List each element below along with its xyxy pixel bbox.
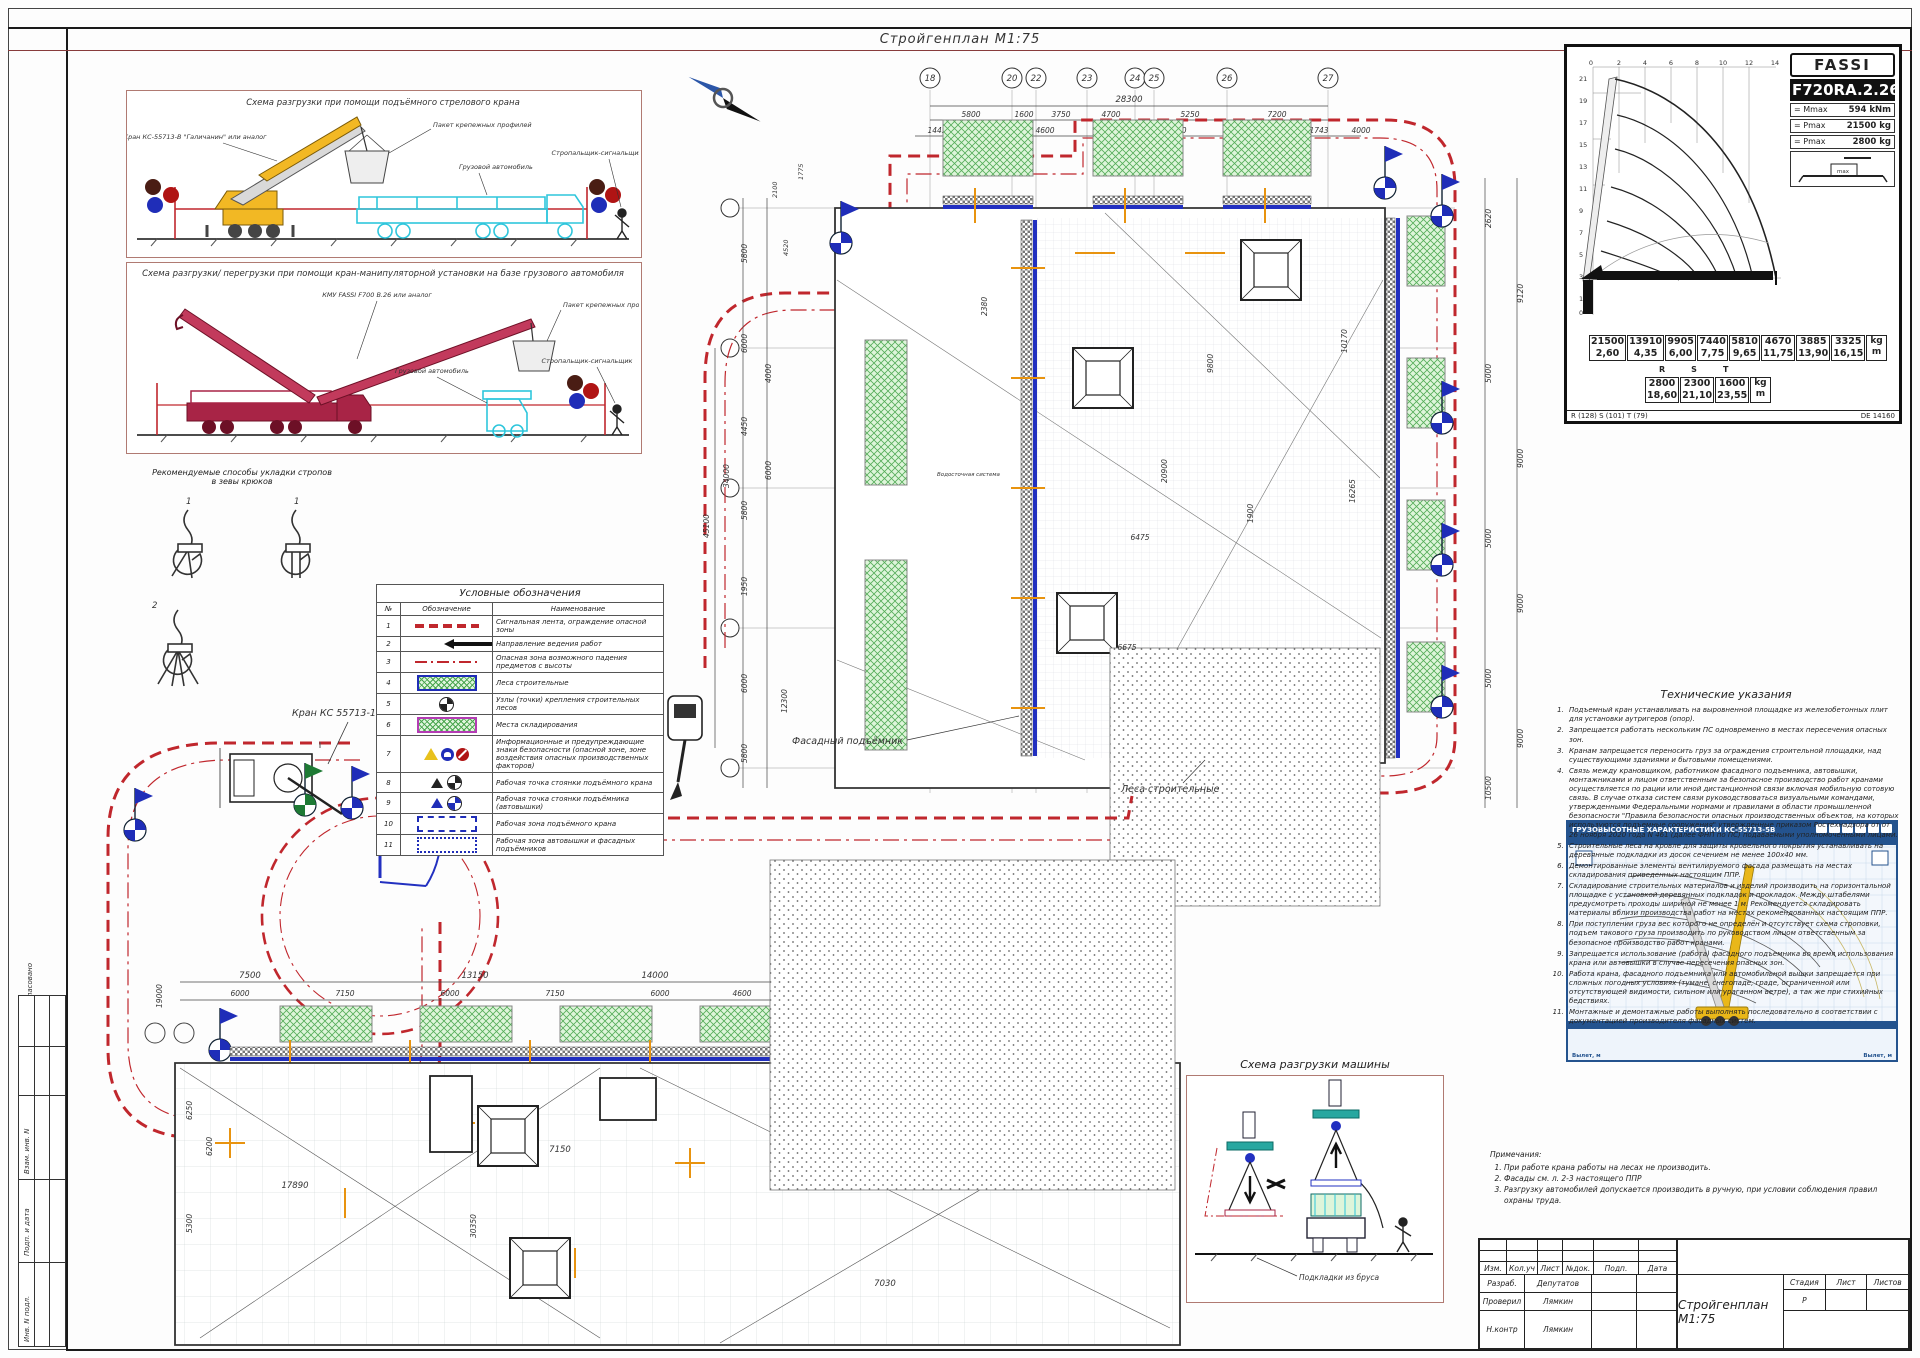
- svg-text:Фасадный подъёмник: Фасадный подъёмник: [792, 736, 903, 747]
- fassi-boom: [1581, 265, 1776, 314]
- svg-text:9120: 9120: [1516, 284, 1525, 303]
- svg-text:3750: 3750: [1051, 110, 1070, 119]
- legend-row: 3Опасная зона возможного падения предмет…: [377, 652, 663, 673]
- fassi-load-chart: 0 2 4 6 8 10 12 14 21 19 17 15 13 11 9 7…: [1564, 44, 1902, 424]
- warning-sign-icon: [424, 748, 438, 760]
- side-stamp-grid-top: [18, 995, 66, 1097]
- sling-left: [1205, 1112, 1283, 1216]
- svg-text:26: 26: [1222, 74, 1233, 84]
- scheme1-rigger-label: Стропальщик-сигнальщик: [552, 149, 639, 157]
- scheme1-truck-label: Грузовой автомобиль: [459, 163, 533, 171]
- legend-row: 8Рабочая точка стоянки подъёмного крана: [377, 773, 663, 793]
- kmu-truck: [176, 309, 555, 434]
- svg-text:4700: 4700: [1101, 110, 1120, 119]
- dim-text-left: 2100 1775 4520 5800 6000 4450 5800 4000 …: [702, 163, 805, 763]
- svg-text:19000: 19000: [155, 984, 164, 1008]
- svg-text:15: 15: [1579, 141, 1587, 149]
- lift-point-flag-icon: [431, 798, 443, 808]
- tech-item: Запрещается использование (работа) фасад…: [1566, 950, 1900, 968]
- hook-3: [158, 610, 198, 686]
- storage-area-icon: [417, 717, 477, 733]
- svg-text:Леса строительные: Леса строительные: [1120, 784, 1220, 795]
- fassi-spec-pmax2: = Pmax2800 kg: [1790, 135, 1895, 149]
- side-label-inv: Инв. N подл.: [23, 1296, 31, 1342]
- svg-text:6475: 6475: [1130, 533, 1149, 542]
- scheme2-truck-label: Грузовой автомобиль: [395, 367, 469, 375]
- svg-text:9000: 9000: [1516, 729, 1525, 748]
- rigger-figure2: [610, 405, 624, 435]
- svg-text:21: 21: [1579, 75, 1587, 83]
- storage-zones-top: [943, 120, 1311, 176]
- stamp-row-ncontrol: Н.контрЛямкин: [1480, 1311, 1676, 1348]
- work-point: [124, 788, 153, 841]
- svg-text:4520: 4520: [782, 239, 790, 256]
- storage-zone-left-2: [865, 560, 907, 750]
- scheme2-panel: Схема разгрузки/ перегрузки при помощи к…: [126, 262, 642, 454]
- scheme1-drawing: Схема разгрузки при помощи подъёмного ст…: [127, 91, 639, 255]
- legend-header: № Обозначение Наименование: [377, 603, 663, 616]
- storage-zones-right: [1407, 216, 1445, 712]
- svg-text:5000: 5000: [1484, 529, 1493, 548]
- tech-item: Кранам запрещается переносить груз за ог…: [1566, 747, 1900, 765]
- svg-text:1743: 1743: [1309, 126, 1328, 135]
- utility-circle: [145, 1023, 165, 1043]
- stamp-row-check: ПроверилЛямкин: [1480, 1293, 1676, 1311]
- skylight: [430, 1076, 472, 1152]
- scaffold-strip-right: [1386, 218, 1400, 758]
- work-point: [1374, 146, 1403, 199]
- prohibit-sign-icon: [456, 748, 469, 761]
- utility-circle: [174, 1023, 194, 1043]
- svg-text:34000: 34000: [722, 464, 731, 488]
- lift-point-icon: [447, 796, 462, 811]
- legend-table: Условные обозначения № Обозначение Наиме…: [376, 584, 664, 856]
- tech-notes-title: Технические указания: [1552, 688, 1900, 702]
- scheme1-panel: Схема разгрузки при помощи подъёмного ст…: [126, 90, 642, 258]
- north-arrow-icon: [687, 65, 763, 133]
- svg-text:5800: 5800: [740, 244, 749, 263]
- tech-notes: Технические указания Подъемный кран уста…: [1552, 688, 1900, 1028]
- svg-text:9800: 9800: [1206, 354, 1215, 373]
- svg-text:13: 13: [1579, 163, 1587, 171]
- side-stamp-grid: Взам. инв. N Подп. и дата Инв. N подл.: [18, 1095, 66, 1347]
- svg-text:5800: 5800: [740, 744, 749, 763]
- svg-text:7500: 7500: [239, 971, 261, 981]
- scheme2-crane-label: КМУ FASSI F700 B.26 или аналог: [322, 291, 432, 299]
- fassi-curves: [1583, 77, 1776, 283]
- tech-item: Работа крана, фасадного подъемника или а…: [1566, 970, 1900, 1006]
- svg-text:30350: 30350: [469, 1214, 478, 1238]
- svg-text:4: 4: [1643, 59, 1647, 67]
- fassi-spec-pmax1: = Pmax21500 kg: [1790, 119, 1895, 133]
- tech-item: При поступлении груза вес которого не оп…: [1566, 920, 1900, 947]
- svg-text:12: 12: [1745, 59, 1753, 67]
- fassi-model: F720RA.2.26: [1790, 79, 1895, 101]
- svg-text:14000: 14000: [641, 971, 668, 981]
- svg-text:18: 18: [925, 74, 936, 84]
- danger-zone-line-icon: [415, 661, 479, 663]
- helmet-sign-icon: [441, 748, 454, 761]
- svg-text:5000: 5000: [1484, 669, 1493, 688]
- svg-text:1900: 1900: [1246, 504, 1255, 523]
- svg-text:4450: 4450: [740, 417, 749, 436]
- sling-title-2: в зевы крюков: [134, 477, 350, 486]
- unload-drawing: Подкладки из бруса: [1187, 1076, 1441, 1300]
- hook-1: [172, 510, 202, 578]
- svg-text:5: 5: [1579, 251, 1583, 259]
- hook-2: [281, 510, 310, 578]
- roof-shaft: [510, 1238, 570, 1298]
- fassi-spec-mmax: = Mmax594 kNm: [1790, 103, 1895, 117]
- legend-row: 5Узлы (точки) крепления строительных лес…: [377, 694, 663, 715]
- title-block: Изм.Кол.уч Лист№док. Подп.Дата Разраб.Де…: [1478, 1238, 1910, 1350]
- svg-text:4000: 4000: [1351, 126, 1370, 135]
- svg-text:1600: 1600: [1014, 110, 1033, 119]
- svg-text:16265: 16265: [1348, 479, 1357, 503]
- svg-text:7030: 7030: [874, 1279, 896, 1289]
- svg-text:4600: 4600: [1035, 126, 1054, 135]
- svg-text:Водосточная система: Водосточная система: [937, 472, 1001, 478]
- svg-text:28300: 28300: [1115, 95, 1142, 105]
- legend-row: 9Рабочая точка стоянки подъёмника (автов…: [377, 793, 663, 814]
- svg-text:10170: 10170: [1340, 329, 1349, 353]
- svg-text:17890: 17890: [281, 1181, 308, 1191]
- tech-notes-list: Подъемный кран устанавливать на выровнен…: [1552, 706, 1900, 1026]
- worker-figure: [1395, 1218, 1411, 1252]
- fassi-footer: R (128) S (101) T (79)DE 14160: [1567, 410, 1899, 421]
- svg-text:6000: 6000: [740, 334, 749, 353]
- scheme2-title: Схема разгрузки/ перегрузки при помощи к…: [142, 269, 624, 279]
- svg-text:6000: 6000: [740, 674, 749, 693]
- scheme1-crane-label: Кран КС-55713-В "Галичанин" или аналог: [127, 133, 267, 141]
- dim-text-right: 2620 9120 5000 9000 5000 9000 5000 9000 …: [1484, 209, 1525, 800]
- signal-tape-icon: [415, 624, 479, 628]
- svg-text:8: 8: [1695, 59, 1699, 67]
- svg-text:2: 2: [152, 601, 157, 611]
- remarks-title: Примечания:: [1490, 1150, 1890, 1161]
- svg-text:3: 3: [1579, 273, 1583, 281]
- existing-area-hatch: [770, 860, 1175, 1190]
- svg-text:13150: 13150: [461, 971, 488, 981]
- svg-text:6000: 6000: [230, 989, 249, 998]
- dim-lines-lower: [180, 982, 780, 1000]
- chart-corner-left: Вылет, м: [1572, 1053, 1601, 1059]
- skylight: [600, 1078, 656, 1120]
- fassi-diagram: 0 2 4 6 8 10 12 14 21 19 17 15 13 11 9 7…: [1571, 53, 1785, 329]
- work-direction-icon: [439, 639, 454, 649]
- stamp-left: Изм.Кол.уч Лист№док. Подп.Дата Разраб.Де…: [1480, 1240, 1678, 1348]
- tech-item: Подъемный кран устанавливать на выровнен…: [1566, 706, 1900, 724]
- scaffold-strips-top: [943, 196, 1311, 209]
- axis-bubbles-top: 18 20 22 23 24 25 26 27: [920, 68, 1338, 88]
- svg-text:6000: 6000: [764, 461, 773, 480]
- svg-text:1: 1: [186, 497, 191, 507]
- svg-text:25: 25: [1149, 74, 1160, 84]
- svg-text:10: 10: [1719, 59, 1727, 67]
- tech-item: Монтажные и демонтажные работы выполнять…: [1566, 1008, 1900, 1026]
- svg-text:0: 0: [1589, 59, 1593, 67]
- elevator-shaft-2: [1057, 593, 1117, 653]
- svg-text:2100: 2100: [771, 181, 779, 198]
- legend-col-name: Наименование: [493, 603, 663, 615]
- sling-title-1: Рекомендуемые способы укладки стропов: [134, 468, 350, 477]
- legend-row: 1Сигнальная лента, ограждение опасной зо…: [377, 616, 663, 637]
- svg-text:45100: 45100: [702, 514, 711, 538]
- scheme2-drawing: Схема разгрузки/ перегрузки при помощи к…: [127, 263, 639, 451]
- legend-row: 6Места складирования: [377, 715, 663, 736]
- svg-text:5800: 5800: [961, 110, 980, 119]
- chart-corner-right: Вылет, м: [1863, 1053, 1892, 1059]
- svg-text:5800: 5800: [740, 501, 749, 520]
- svg-text:23: 23: [1082, 74, 1093, 84]
- svg-text:9000: 9000: [1516, 449, 1525, 468]
- storage-zones-lower: [280, 1006, 780, 1042]
- sling-drawings: 1 1 2: [134, 486, 350, 726]
- fassi-outrigger-diagram: max: [1790, 151, 1895, 187]
- svg-text:7200: 7200: [1267, 110, 1286, 119]
- svg-text:6: 6: [1669, 59, 1673, 67]
- svg-text:0: 0: [1579, 309, 1583, 317]
- svg-text:12300: 12300: [780, 689, 789, 713]
- svg-text:4600: 4600: [732, 989, 751, 998]
- main-building-plan: 18 20 22 23 24 25 26 27 28300 5800 1: [687, 65, 1525, 906]
- legend-row: 2Направление ведения работ: [377, 637, 663, 652]
- svg-text:6250: 6250: [185, 1101, 194, 1120]
- svg-text:27: 27: [1323, 74, 1334, 84]
- svg-text:2380: 2380: [980, 297, 989, 316]
- svg-text:10500: 10500: [1484, 776, 1493, 800]
- stamp-stage-grid: Стадия Лист Листов Р: [1784, 1275, 1908, 1348]
- legend-row: 10Рабочая зона подъёмного крана: [377, 814, 663, 835]
- crane-point-icon: [447, 775, 462, 790]
- dim-text-lower-top: 7500 13150 14000 6000 7150 6000 7150 600…: [230, 971, 751, 998]
- svg-text:22: 22: [1031, 74, 1042, 84]
- fassi-load-table: 215002,60 139104,35 99056,00 74407,75 58…: [1589, 335, 1887, 361]
- stamp-row-dev: Разраб.Депутатов: [1480, 1275, 1676, 1293]
- unload-title: Схема разгрузки машины: [1186, 1058, 1444, 1071]
- svg-text:5300: 5300: [185, 1214, 194, 1233]
- svg-text:17: 17: [1579, 119, 1587, 127]
- svg-text:24: 24: [1130, 74, 1141, 84]
- scheme1-title: Схема разгрузки при помощи подъёмного ст…: [246, 98, 520, 108]
- excavator-icon: [668, 696, 702, 800]
- remark-item: При работе крана работы на лесах не прои…: [1504, 1163, 1890, 1174]
- sling-right: [1267, 1080, 1383, 1252]
- legend-title: Условные обозначения: [377, 585, 663, 603]
- svg-text:20: 20: [1007, 74, 1018, 84]
- svg-text:1950: 1950: [740, 577, 749, 596]
- safety-signs2: [567, 375, 599, 409]
- unload-scheme: Схема разгрузки машины: [1186, 1058, 1444, 1303]
- fassi-rst-letters: RST: [1659, 365, 1728, 374]
- roof-shaft: [478, 1106, 538, 1166]
- legend-col-num: №: [377, 603, 401, 615]
- tech-item: Связь между крановщиком, работником фаса…: [1566, 767, 1900, 840]
- storage-zone-left-1: [865, 340, 907, 485]
- svg-text:6000: 6000: [650, 989, 669, 998]
- pad-label: Подкладки из бруса: [1299, 1273, 1380, 1282]
- side-label-podp: Подп. и дата: [23, 1208, 31, 1256]
- svg-text:6675: 6675: [1117, 643, 1136, 652]
- sling-methods: Рекомендуемые способы укладки стропов в …: [134, 468, 350, 738]
- drawing-sheet: Стройгенплан М1:75 Согласовано Гл. спец.…: [0, 0, 1920, 1358]
- svg-text:19: 19: [1579, 97, 1587, 105]
- svg-text:6200: 6200: [205, 1137, 214, 1156]
- svg-text:1: 1: [294, 497, 299, 507]
- svg-text:max: max: [1837, 169, 1850, 175]
- svg-text:1775: 1775: [797, 163, 805, 180]
- tech-item: Демонтированные элементы вентилируемого …: [1566, 862, 1900, 880]
- crane-point-flag-icon: [431, 778, 443, 788]
- anchor-point-icon: [439, 697, 454, 712]
- svg-text:7: 7: [1579, 229, 1583, 237]
- legend-row: 7Информационные и предупреждающие знаки …: [377, 736, 663, 773]
- legend-col-sym: Обозначение: [401, 603, 493, 615]
- target-truck: [483, 391, 531, 437]
- scheme1-package-label: Пакет крепежных профилей: [433, 121, 532, 129]
- tech-item: Запрещается работать нескольким ПС однов…: [1566, 726, 1900, 744]
- tech-item: Строительные леса на кровле для защиты к…: [1566, 842, 1900, 860]
- svg-text:14: 14: [1771, 59, 1779, 67]
- elevator-shaft-1: [1073, 348, 1133, 408]
- remarks-block: Примечания: При работе крана работы на л…: [1490, 1150, 1890, 1206]
- svg-text:11: 11: [1579, 185, 1587, 193]
- elevator-shaft-3: [1241, 240, 1301, 300]
- svg-text:5250: 5250: [1180, 110, 1199, 119]
- tech-item: Складирование строительных материалов и …: [1566, 882, 1900, 918]
- legend-row: 11Рабочая зона автовышки и фасадных подъ…: [377, 835, 663, 855]
- svg-text:20900: 20900: [1160, 459, 1169, 483]
- svg-text:5000: 5000: [1484, 364, 1493, 383]
- svg-text:6000: 6000: [440, 989, 459, 998]
- scheme2-rigger-label: Стропальщик-сигнальщик: [542, 357, 633, 365]
- stamp-header-row: Изм.Кол.уч Лист№док. Подп.Дата: [1480, 1262, 1676, 1275]
- legend-row: 4Леса строительные: [377, 673, 663, 694]
- remark-item: Разгрузку автомобилей допускается произв…: [1504, 1185, 1890, 1207]
- remarks-list: При работе крана работы на лесах не прои…: [1490, 1163, 1890, 1207]
- svg-text:2620: 2620: [1484, 209, 1493, 228]
- svg-text:2: 2: [1617, 59, 1621, 67]
- side-label-vzam: Взам. инв. N: [23, 1129, 31, 1174]
- crane-zone-icon: [417, 816, 477, 832]
- dim-lines-right: [1485, 178, 1517, 808]
- flatbed-truck: [357, 195, 583, 238]
- remark-item: Фасады см. л. 2-3 настоящего ППР: [1504, 1174, 1890, 1185]
- fassi-rst-table: 280018,60 230021,10 160023,55 kgm: [1645, 377, 1771, 403]
- scaffolding-icon: [417, 675, 477, 691]
- svg-text:1: 1: [1579, 295, 1583, 303]
- stamp-right: Стройгенплан М1:75 Стадия Лист Листов Р: [1678, 1240, 1908, 1348]
- fassi-logo: FASSI: [1790, 53, 1895, 77]
- page-title: Стройгенплан М1:75: [880, 32, 1040, 47]
- scheme2-package-label: Пакет крепежных профилей: [563, 301, 639, 309]
- svg-text:4000: 4000: [764, 364, 773, 383]
- svg-text:9000: 9000: [1516, 594, 1525, 613]
- svg-text:9: 9: [1579, 207, 1583, 215]
- rigger-figure: [615, 209, 629, 239]
- svg-text:7150: 7150: [545, 989, 564, 998]
- svg-text:7150: 7150: [549, 1145, 571, 1155]
- svg-text:7150: 7150: [335, 989, 354, 998]
- lift-zone-icon: [417, 837, 477, 853]
- fassi-header: FASSI F720RA.2.26 = Mmax594 kNm = Pmax21…: [1790, 53, 1895, 187]
- stamp-doc-title: Стройгенплан М1:75: [1678, 1275, 1784, 1348]
